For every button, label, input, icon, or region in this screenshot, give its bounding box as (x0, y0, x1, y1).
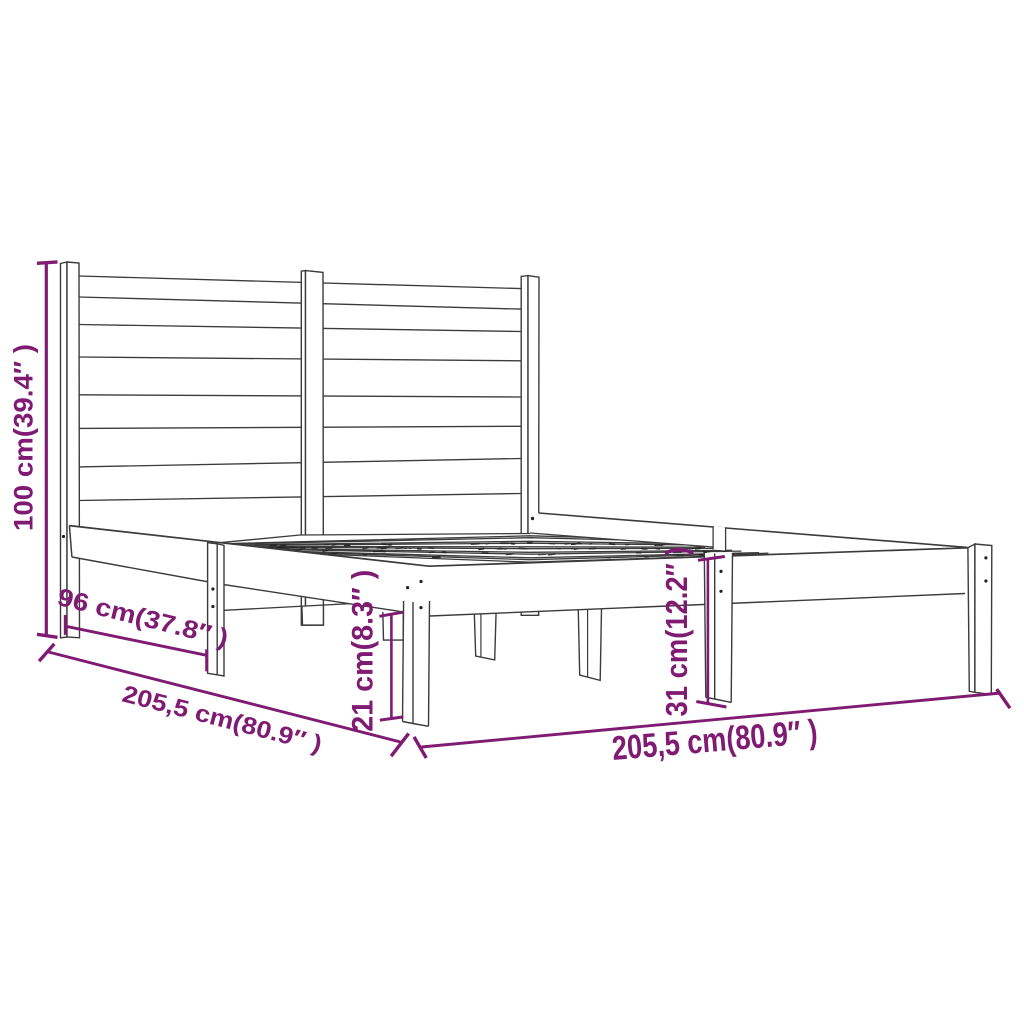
svg-text:100 cm(39.4″ ): 100 cm(39.4″ ) (9, 344, 39, 531)
svg-text:31 cm(12.2″ ): 31 cm(12.2″ ) (659, 547, 694, 717)
svg-text:21 cm(8.3″ ): 21 cm(8.3″ ) (347, 570, 380, 732)
